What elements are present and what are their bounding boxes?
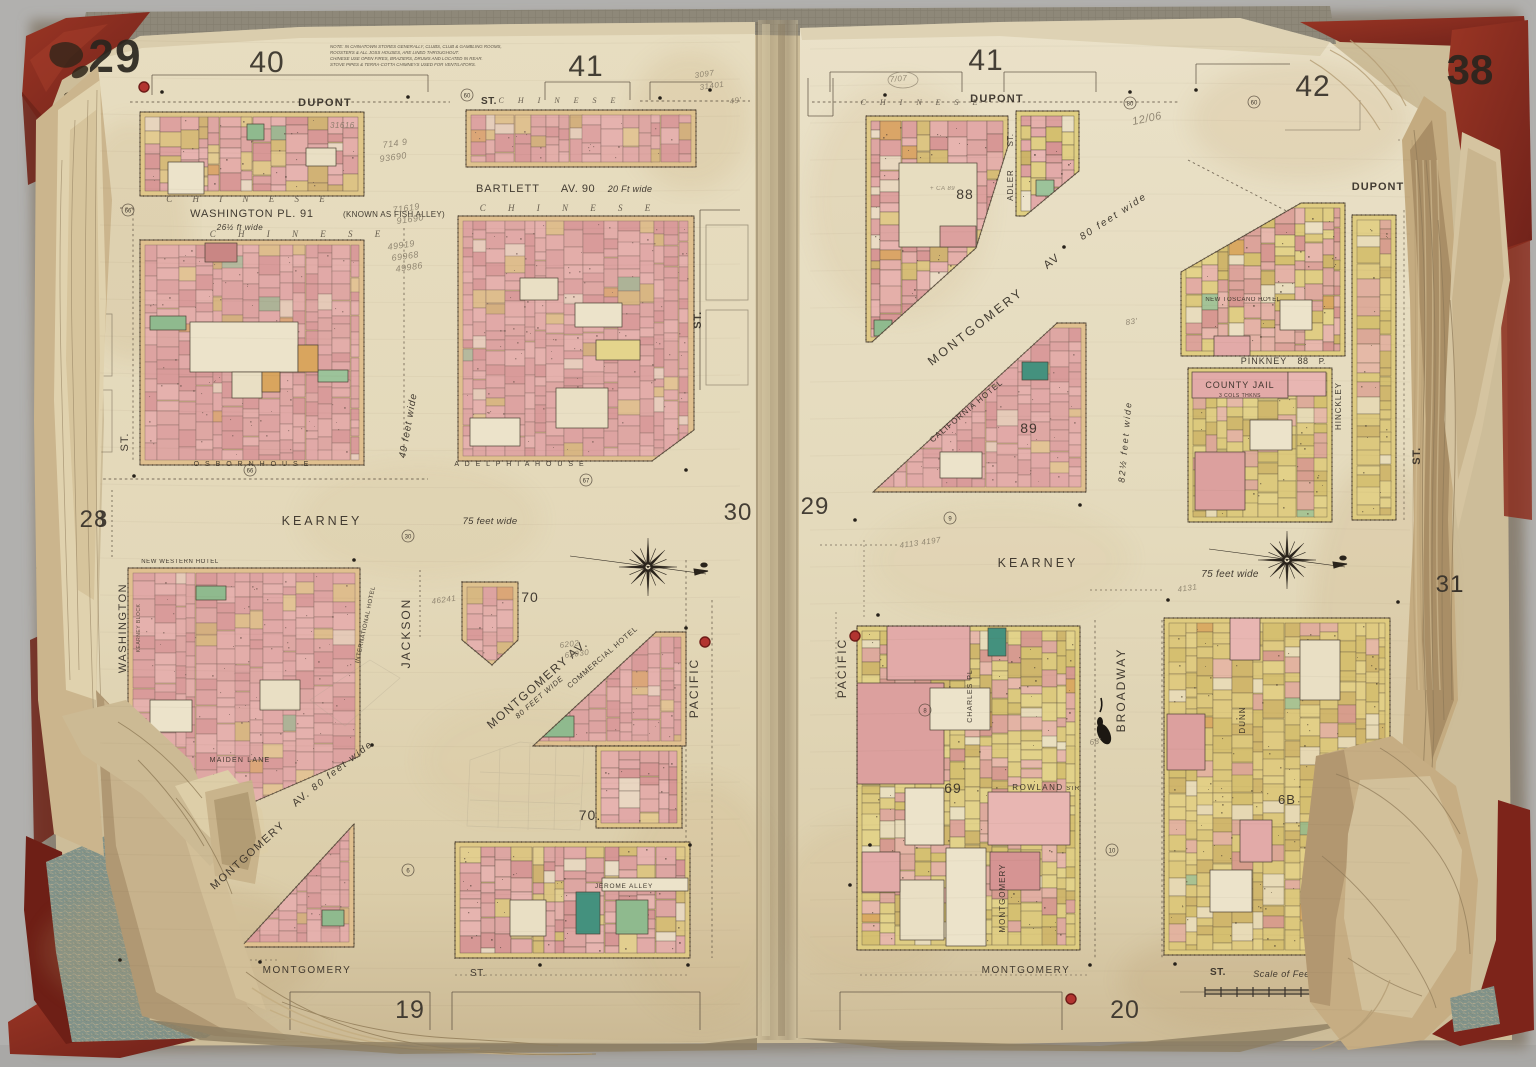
svg-text:MONTGOMERY: MONTGOMERY: [982, 965, 1071, 976]
svg-text:STOVE PIPES & TERRA-COTTA CHIM: STOVE PIPES & TERRA-COTTA CHIMNEYS USED …: [330, 62, 476, 67]
svg-text:69: 69: [944, 780, 962, 796]
svg-text:COUNTY JAIL: COUNTY JAIL: [1205, 380, 1274, 390]
svg-text:30: 30: [724, 499, 753, 526]
svg-text:NOTE: IN CHINATOWN STORES GENE: NOTE: IN CHINATOWN STORES GENERALLY, CLU…: [330, 44, 502, 49]
svg-text:20: 20: [1110, 996, 1140, 1024]
svg-text:41: 41: [568, 50, 603, 83]
svg-text:60: 60: [1251, 101, 1258, 107]
svg-text:KEARNEY: KEARNEY: [998, 556, 1079, 570]
svg-text:C H I N E S E: C H I N E S E: [166, 194, 334, 204]
svg-text:ROOSTERS & ALL JOSS HOUSES, AR: ROOSTERS & ALL JOSS HOUSES, ARE LINED TH…: [330, 50, 459, 55]
svg-text:75 feet wide: 75 feet wide: [463, 516, 518, 527]
svg-text:7/07: 7/07: [889, 73, 907, 84]
svg-text:88: 88: [956, 186, 974, 202]
svg-text:CHINESE USE OPEN FIRES, BRAZIE: CHINESE USE OPEN FIRES, BRAZIERS, DRUMS …: [330, 56, 483, 61]
svg-text:JACKSON: JACKSON: [399, 598, 413, 669]
svg-text:20 Ft wide: 20 Ft wide: [607, 184, 653, 194]
svg-text:KEARNEY: KEARNEY: [282, 514, 363, 528]
svg-text:66: 66: [247, 469, 254, 475]
svg-text:C H I N E S E: C H I N E S E: [210, 229, 391, 239]
svg-text:88: 88: [1297, 356, 1308, 366]
svg-text:19: 19: [395, 996, 425, 1024]
svg-text:DUPONT: DUPONT: [1352, 181, 1404, 193]
svg-text:ST.: ST.: [692, 311, 704, 328]
svg-text:42: 42: [1295, 70, 1330, 103]
svg-text:A D E L P H I A H O U S E: A D E L P H I A H O U S E: [454, 461, 585, 468]
svg-text:STR: STR: [1066, 786, 1080, 792]
svg-text:75 feet wide: 75 feet wide: [1201, 569, 1259, 580]
svg-text:83': 83': [1125, 316, 1138, 327]
svg-text:HINCKLEY: HINCKLEY: [1334, 382, 1343, 430]
svg-text:C H I N E S E: C H I N E S E: [861, 98, 984, 107]
svg-text:ST.: ST.: [1411, 447, 1423, 464]
svg-text:PACIFIC: PACIFIC: [687, 658, 701, 718]
svg-text:PINKNEY: PINKNEY: [1241, 356, 1288, 366]
svg-text:MAIDEN LANE: MAIDEN LANE: [210, 757, 271, 764]
svg-text:80: 80: [1127, 102, 1134, 108]
svg-text:67: 67: [583, 479, 590, 485]
svg-text:30: 30: [405, 535, 412, 541]
svg-text:49': 49': [729, 95, 742, 106]
svg-text:70: 70: [521, 589, 539, 605]
svg-text:38: 38: [1447, 46, 1494, 93]
svg-text:66: 66: [125, 209, 132, 215]
svg-text:ST.: ST.: [1006, 133, 1015, 146]
svg-text:MONTGOMERY: MONTGOMERY: [998, 864, 1007, 933]
svg-text:10: 10: [1109, 849, 1116, 855]
svg-text:KEARNEY BLOCK: KEARNEY BLOCK: [136, 604, 142, 653]
svg-text:JEROME ALLEY: JEROME ALLEY: [595, 883, 653, 890]
svg-text:BARTLETT: BARTLETT: [476, 183, 540, 195]
svg-text:Scale of Feet: Scale of Feet: [1253, 969, 1313, 979]
svg-text:NEW TOSCANO HOTEL: NEW TOSCANO HOTEL: [1205, 297, 1280, 303]
svg-text:C H I N E S E: C H I N E S E: [480, 203, 661, 213]
svg-text:28: 28: [80, 506, 109, 533]
svg-text:29: 29: [801, 493, 830, 520]
svg-text:ST.: ST.: [481, 96, 497, 107]
svg-text:89: 89: [1020, 420, 1038, 436]
svg-text:68': 68': [1089, 736, 1102, 747]
svg-text:PACIFIC: PACIFIC: [835, 638, 849, 698]
svg-text:6B: 6B: [1278, 792, 1296, 807]
svg-text:60: 60: [464, 94, 471, 100]
svg-text:CHARLES PL: CHARLES PL: [967, 669, 974, 723]
svg-text:WASHINGTON: WASHINGTON: [117, 583, 129, 673]
svg-text:P.: P.: [1319, 357, 1326, 366]
svg-text:MONTGOMERY: MONTGOMERY: [263, 965, 352, 976]
svg-text:ST.: ST.: [470, 968, 486, 979]
svg-text:WASHINGTON PL. 91: WASHINGTON PL. 91: [190, 208, 314, 220]
svg-text:31616: 31616: [330, 121, 355, 130]
svg-text:ST.: ST.: [1210, 967, 1226, 978]
svg-text:31: 31: [1436, 571, 1465, 598]
svg-text:3 COLS THKNS: 3 COLS THKNS: [1219, 393, 1261, 399]
svg-text:ADLER: ADLER: [1006, 169, 1015, 201]
svg-text:40: 40: [249, 46, 284, 79]
svg-text:AV. 90: AV. 90: [561, 183, 595, 195]
svg-text:+ CA 89: + CA 89: [930, 186, 955, 192]
svg-text:BROADWAY: BROADWAY: [1114, 648, 1128, 733]
svg-text:41: 41: [968, 44, 1003, 77]
svg-text:ST.: ST.: [119, 433, 131, 452]
svg-text:DUPONT: DUPONT: [298, 97, 352, 109]
svg-text:C H I N E S E: C H I N E S E: [499, 96, 622, 105]
svg-text:DUNN: DUNN: [1238, 706, 1247, 733]
svg-text:ROWLAND: ROWLAND: [1012, 783, 1063, 792]
